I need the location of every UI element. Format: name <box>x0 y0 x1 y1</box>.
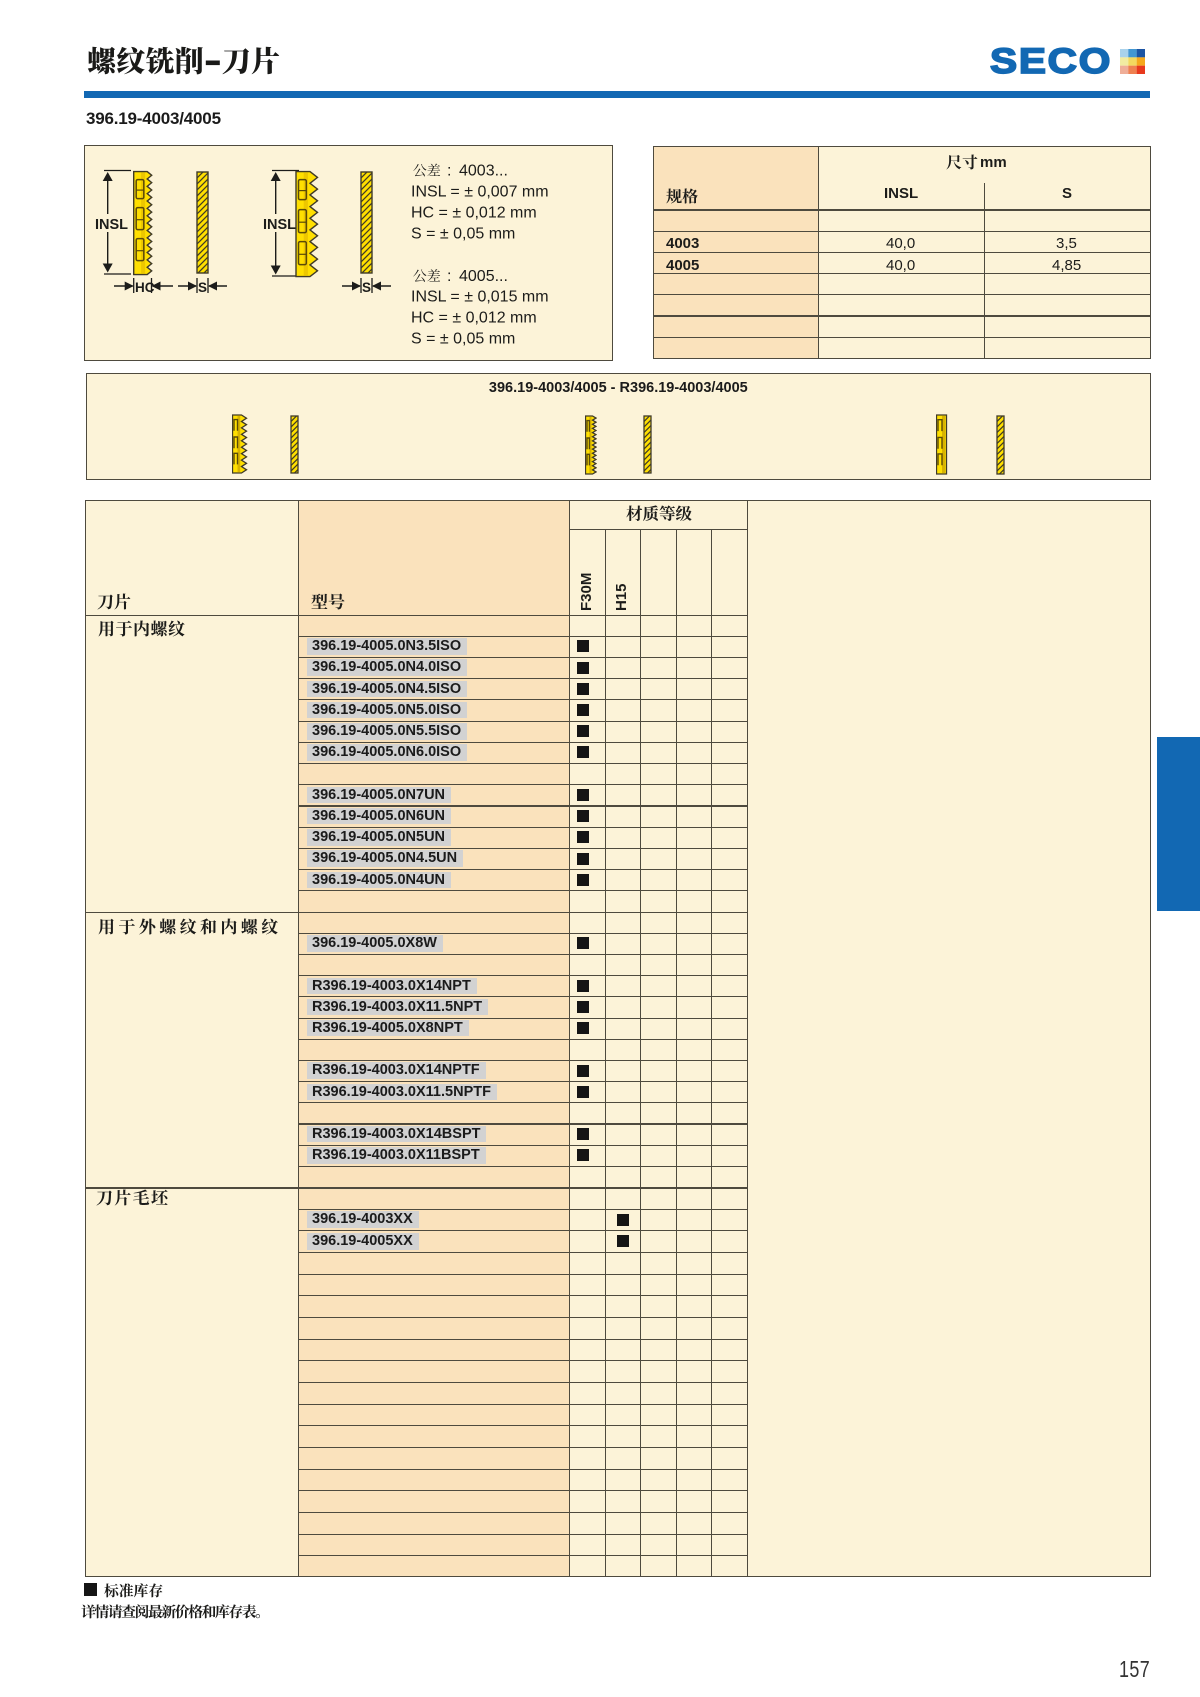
svg-text:INSL: INSL <box>263 217 296 233</box>
svg-text:HC = ± 0,012 mm: HC = ± 0,012 mm <box>411 310 537 327</box>
svg-text:HC = ± 0,012 mm: HC = ± 0,012 mm <box>411 205 537 222</box>
svg-text:INSL: INSL <box>95 217 128 233</box>
svg-text::: : <box>447 163 451 180</box>
svg-text:S = ± 0,05 mm: S = ± 0,05 mm <box>411 331 515 348</box>
svg-text:HC: HC <box>135 280 155 295</box>
svg-text:INSL = ± 0,015 mm: INSL = ± 0,015 mm <box>411 289 549 306</box>
svg-text:S: S <box>198 280 207 295</box>
svg-text:4003...: 4003... <box>459 163 508 180</box>
svg-text:INSL = ± 0,007 mm: INSL = ± 0,007 mm <box>411 184 549 201</box>
svg-text::: : <box>447 268 451 285</box>
svg-text:S: S <box>362 280 371 295</box>
svg-text:S = ± 0,05 mm: S = ± 0,05 mm <box>411 226 515 243</box>
svg-text:4005...: 4005... <box>459 268 508 285</box>
